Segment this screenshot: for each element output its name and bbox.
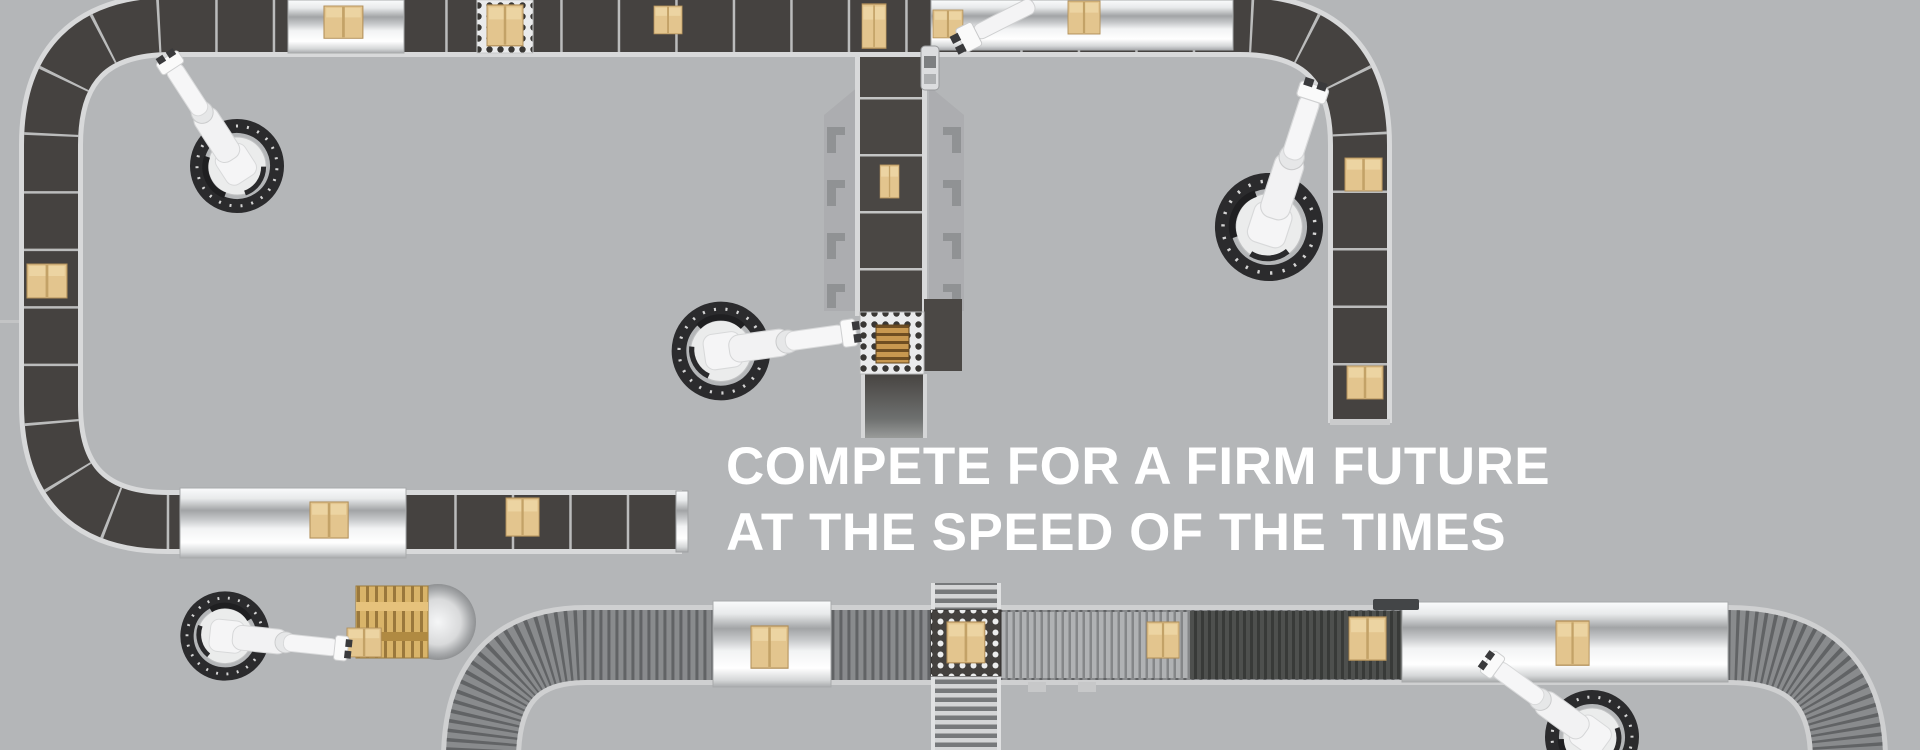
cardboard-box [1556, 621, 1589, 665]
cardboard-box [27, 264, 67, 298]
cross-transfer-station [931, 583, 1001, 750]
conveyor-foot [1078, 682, 1096, 692]
cardboard-box [1349, 617, 1386, 660]
belt-end-cap [676, 491, 688, 552]
cardboard-box [310, 502, 348, 538]
cardboard-box [506, 498, 539, 536]
headline-line-1: COMPETE FOR A FIRM FUTURE [726, 434, 1550, 500]
cardboard-box [1347, 366, 1383, 399]
conveyor-scene-illustration [0, 0, 1920, 750]
station-shadow-panel [924, 299, 962, 371]
rail-clamp [1373, 599, 1419, 610]
slatted-pallet [876, 325, 909, 363]
cardboard-box [1147, 622, 1179, 658]
headline-line-2: AT THE SPEED OF THE TIMES [726, 500, 1550, 566]
cardboard-box [880, 165, 899, 198]
conveyor-foot [1028, 682, 1046, 692]
station-outfeed-stub [861, 374, 927, 438]
belt-end-rail [1330, 419, 1390, 425]
chrome-cover-bottom-left-belt [180, 488, 406, 558]
robot-arm [130, 32, 292, 221]
cardboard-box [1345, 158, 1382, 191]
pallet-on-roller-plate [487, 5, 523, 46]
cardboard-box [1068, 1, 1100, 34]
belt-clamp-hardware [921, 46, 939, 90]
headline: COMPETE FOR A FIRM FUTURE AT THE SPEED O… [726, 434, 1550, 566]
cardboard-box [654, 6, 682, 34]
cardboard-box [862, 4, 886, 48]
robot-arm [183, 594, 355, 687]
cardboard-box [324, 6, 363, 38]
hero-banner: COMPETE FOR A FIRM FUTURE AT THE SPEED O… [0, 0, 1920, 750]
cardboard-box [947, 622, 985, 663]
cardboard-box [751, 626, 788, 668]
